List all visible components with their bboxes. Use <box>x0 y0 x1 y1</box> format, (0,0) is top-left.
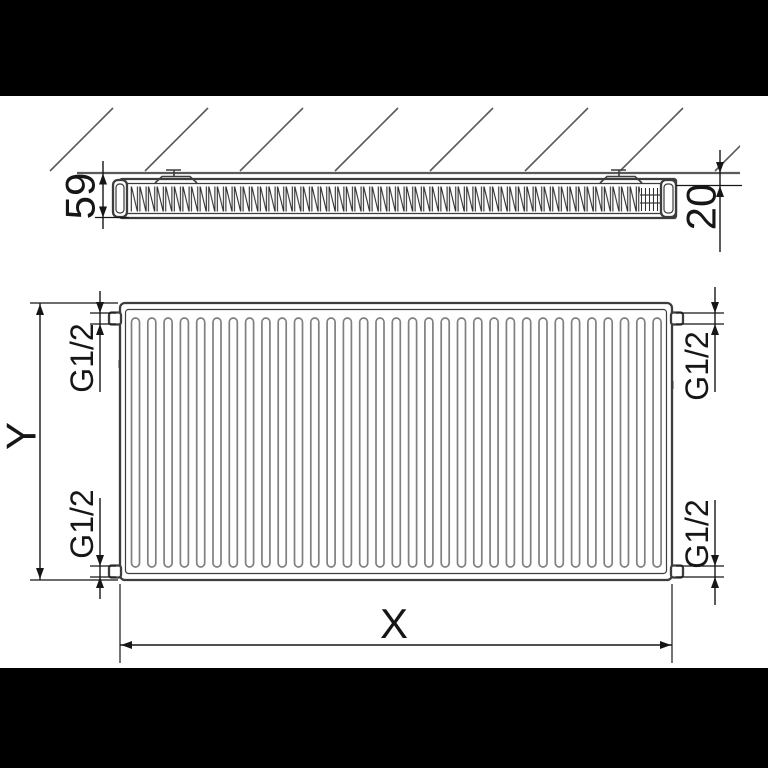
arrow-up-icon <box>36 304 44 315</box>
connection-stub-bottom-left <box>109 566 121 578</box>
dimension-g12-top-right: G1/2 <box>676 287 724 401</box>
edge-nub-right <box>671 381 674 389</box>
wall-hatching <box>50 108 768 171</box>
hatch-line <box>620 108 683 171</box>
connection-size: G1/2 <box>64 323 100 392</box>
arrow-left-icon <box>121 641 132 649</box>
convector-fins-profile <box>130 187 640 212</box>
connection-size: G1/2 <box>679 331 715 400</box>
connection-stub-top-left <box>109 313 121 325</box>
hatch-line <box>715 108 768 171</box>
connection-size: G1/2 <box>64 489 100 558</box>
dimension-g12-top-left: G1/2 <box>64 291 116 393</box>
valve-insert <box>640 187 662 211</box>
letterbox-top <box>0 0 768 96</box>
radiator-technical-drawing: 59 20 G1/2 <box>0 0 768 768</box>
depth-value: 59 <box>57 173 104 220</box>
dimension-g12-bottom-right: G1/2 <box>676 499 724 605</box>
arrow-down-icon <box>36 568 44 579</box>
dimension-width-x: X <box>120 584 672 663</box>
hatch-line <box>525 108 588 171</box>
arrow-down-icon <box>716 162 724 173</box>
width-value: X <box>380 600 408 647</box>
front-view: G1/2 G1/2 G1/2 G1/2 <box>0 287 724 663</box>
height-value: Y <box>0 422 45 450</box>
arrow-right-icon <box>660 641 671 649</box>
drawing-canvas: 59 20 G1/2 <box>0 0 768 768</box>
edge-nub-left <box>119 360 122 368</box>
hatch-line <box>430 108 493 171</box>
hatch-line <box>335 108 398 171</box>
hatch-line <box>240 108 303 171</box>
hatch-line <box>145 108 208 171</box>
arrow-up-icon <box>711 577 719 588</box>
end-cap-right <box>661 180 676 217</box>
connection-stub-top-right <box>671 313 683 325</box>
front-body <box>120 303 672 580</box>
arrow-up-icon <box>96 577 104 588</box>
arrow-down-icon <box>96 302 104 313</box>
dimension-g12-bottom-left: G1/2 <box>64 489 116 599</box>
connection-size: G1/2 <box>679 499 715 568</box>
letterbox-bottom <box>0 668 768 768</box>
wall-gap-value: 20 <box>678 184 725 231</box>
arrow-down-icon <box>711 302 719 313</box>
side-view: 59 20 <box>50 108 768 252</box>
dimension-wall-gap-20: 20 <box>676 150 742 252</box>
end-cap-left <box>113 180 127 217</box>
